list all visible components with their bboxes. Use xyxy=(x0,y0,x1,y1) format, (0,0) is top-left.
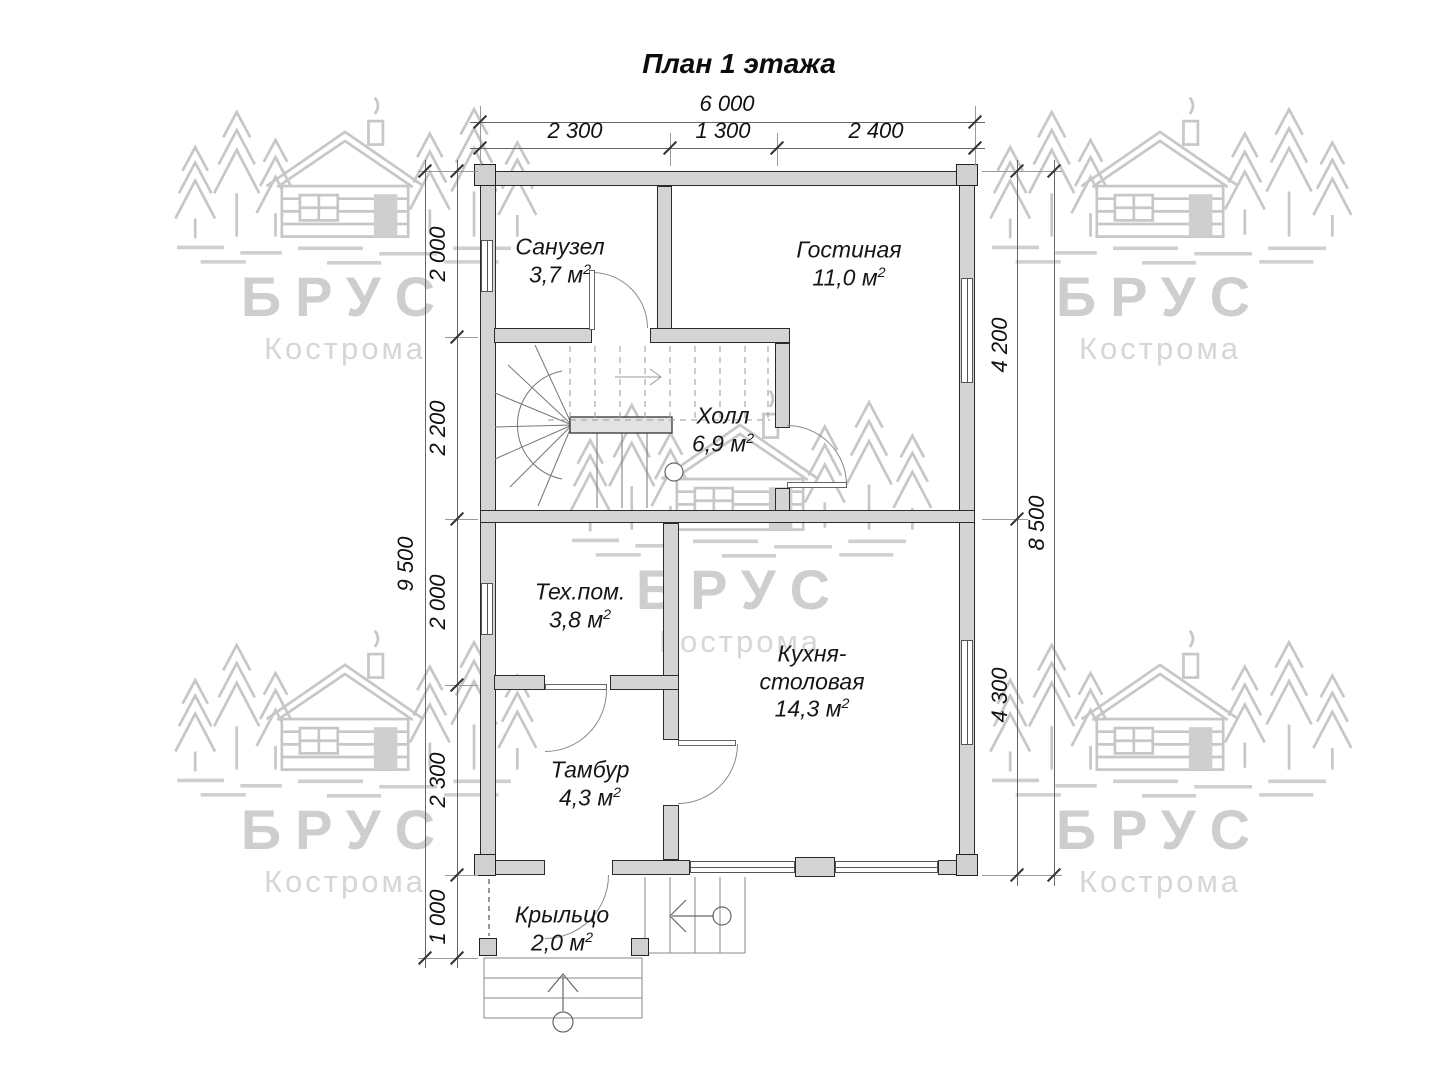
watermark-city: Кострома xyxy=(940,864,1380,900)
window-kuhnya-bottom-2 xyxy=(835,861,938,873)
dim-left-seg-3: 2 000 xyxy=(425,574,451,629)
dim-line-left-segments xyxy=(457,160,458,968)
window-gostinaya xyxy=(961,278,973,383)
door-leaf-tehpom xyxy=(545,684,607,690)
dim-left-seg-2: 2 200 xyxy=(425,400,451,455)
ext-line xyxy=(975,106,976,166)
area-unit: м xyxy=(569,929,585,955)
room-name: Холл xyxy=(692,402,754,430)
window-kuhnya-bottom-1 xyxy=(690,861,795,873)
door-arc-tehpom xyxy=(545,690,607,752)
dim-top-total: 6 000 xyxy=(699,91,754,117)
dim-left-seg-4: 2 300 xyxy=(425,752,451,807)
ext-line xyxy=(418,958,478,959)
dim-left-seg-5: 1 000 xyxy=(425,889,451,944)
watermark-brand: БРУС xyxy=(125,269,565,325)
door-arc-gostinaya xyxy=(787,425,847,485)
ext-line xyxy=(445,337,478,338)
ext-line xyxy=(777,133,778,166)
room-area: 2,0 м2 xyxy=(515,929,609,957)
room-label-holl: Холл 6,9 м2 xyxy=(692,402,754,457)
dim-top-seg-1: 2 300 xyxy=(547,118,602,144)
wall-tehpom-tambur-left xyxy=(494,675,545,690)
room-label-tehpom: Тех.пом. 3,8 м2 xyxy=(535,578,626,633)
stairs-and-steps-graphics xyxy=(0,0,1440,1080)
area-sup: 2 xyxy=(583,261,591,277)
area-value: 2,0 xyxy=(531,929,563,955)
ext-line xyxy=(445,685,478,686)
wall-tehpom-kuhnya xyxy=(663,523,679,740)
room-name: Санузел xyxy=(515,233,604,261)
dim-line-right-segments xyxy=(1017,160,1018,886)
door-arc-kuhnya xyxy=(678,744,738,804)
ext-line xyxy=(418,171,478,172)
door-leaf-gostinaya xyxy=(787,482,847,488)
room-area: 14,3 м2 xyxy=(759,696,864,724)
area-unit: м xyxy=(597,784,613,810)
porch-post-right xyxy=(631,938,649,956)
window-tehpom xyxy=(481,583,493,635)
room-area: 6,9 м2 xyxy=(692,430,754,458)
dim-top-seg-3: 2 400 xyxy=(848,118,903,144)
area-value: 11,0 xyxy=(812,264,855,290)
watermark-brand: БРУС xyxy=(125,802,565,858)
room-area: 3,7 м2 xyxy=(515,261,604,289)
window-sanuzel xyxy=(481,240,493,292)
wall-exterior-right xyxy=(959,171,975,875)
watermark-cabin-graphic xyxy=(940,85,1380,270)
area-unit: м xyxy=(862,264,878,290)
room-label-gostinaya: Гостиная 11,0 м2 xyxy=(796,236,901,291)
room-label-tambur: Тамбур 4,3 м2 xyxy=(551,756,630,811)
area-unit: м xyxy=(730,430,746,456)
area-sup: 2 xyxy=(842,696,850,712)
area-unit: м xyxy=(826,696,842,722)
watermark-cabin-graphic xyxy=(125,618,565,803)
dim-left-seg-1: 2 000 xyxy=(425,226,451,281)
dim-line-right-total xyxy=(1054,160,1055,886)
room-name: Тех.пом. xyxy=(535,578,626,606)
room-label-sanuzel: Санузел 3,7 м2 xyxy=(515,233,604,288)
corner-post-top-right xyxy=(956,164,978,186)
room-name-line1: Кухня- xyxy=(759,641,864,669)
room-area: 4,3 м2 xyxy=(551,784,630,812)
area-value: 3,8 xyxy=(549,606,581,632)
corner-post-bottom-right xyxy=(956,854,978,876)
area-sup: 2 xyxy=(613,784,621,800)
room-label-kryltso: Крыльцо 2,0 м2 xyxy=(515,901,609,956)
watermark-top-left: БРУС Кострома xyxy=(125,85,565,367)
watermark-bottom-left: БРУС Кострома xyxy=(125,618,565,900)
porch-post-left xyxy=(479,938,497,956)
window-kuhnya-right xyxy=(961,640,973,745)
room-area: 11,0 м2 xyxy=(796,264,901,292)
wall-middle-horizontal xyxy=(480,510,975,523)
area-value: 6,9 xyxy=(692,430,724,456)
watermark-brand: БРУС xyxy=(940,802,1380,858)
area-unit: м xyxy=(567,261,583,287)
room-name-line2: столовая xyxy=(759,668,864,696)
room-name: Крыльцо xyxy=(515,901,609,929)
wall-exterior-bottom-2 xyxy=(612,860,690,875)
dim-line-top-segments xyxy=(470,148,985,149)
area-sup: 2 xyxy=(585,929,593,945)
door-leaf-kuhnya xyxy=(678,740,736,746)
corner-post-top-left xyxy=(474,164,496,186)
room-name: Тамбур xyxy=(551,756,630,784)
room-name: Гостиная xyxy=(796,236,901,264)
area-value: 3,7 xyxy=(529,261,561,287)
room-area: 3,8 м2 xyxy=(535,606,626,634)
wall-sanuzel-bottom-left xyxy=(494,328,592,343)
corner-post-bottom-left xyxy=(474,854,496,876)
ext-line xyxy=(445,519,478,520)
dim-top-seg-2: 1 300 xyxy=(695,118,750,144)
area-value: 14,3 xyxy=(775,696,820,722)
wall-gostinaya-left-upper xyxy=(775,343,790,428)
wall-tehpom-tambur-right xyxy=(610,675,679,690)
wall-exterior-top xyxy=(480,171,975,186)
area-sup: 2 xyxy=(603,606,611,622)
dim-left-total: 9 500 xyxy=(393,536,419,591)
area-sup: 2 xyxy=(878,264,886,280)
watermark-bottom-right: БРУС Кострома xyxy=(940,618,1380,900)
room-label-kuhnya: Кухня- столовая 14,3 м2 xyxy=(759,641,864,724)
ext-line xyxy=(480,106,481,166)
area-value: 4,3 xyxy=(559,784,591,810)
ext-line xyxy=(670,133,671,166)
dim-right-total: 8 500 xyxy=(1024,495,1050,550)
area-unit: м xyxy=(587,606,603,632)
area-sup: 2 xyxy=(746,430,754,446)
dim-right-seg-2: 4 300 xyxy=(987,667,1013,722)
wall-sanuzel-right xyxy=(657,186,672,343)
page-title: План 1 этажа xyxy=(642,48,836,80)
ext-line xyxy=(982,519,1028,520)
wall-exterior-bottom-pier xyxy=(795,857,835,877)
dim-right-seg-1: 4 200 xyxy=(987,317,1013,372)
wall-tambur-kuhnya xyxy=(663,805,679,860)
wall-gostinaya-bottom xyxy=(650,328,790,343)
ext-line xyxy=(445,875,478,876)
